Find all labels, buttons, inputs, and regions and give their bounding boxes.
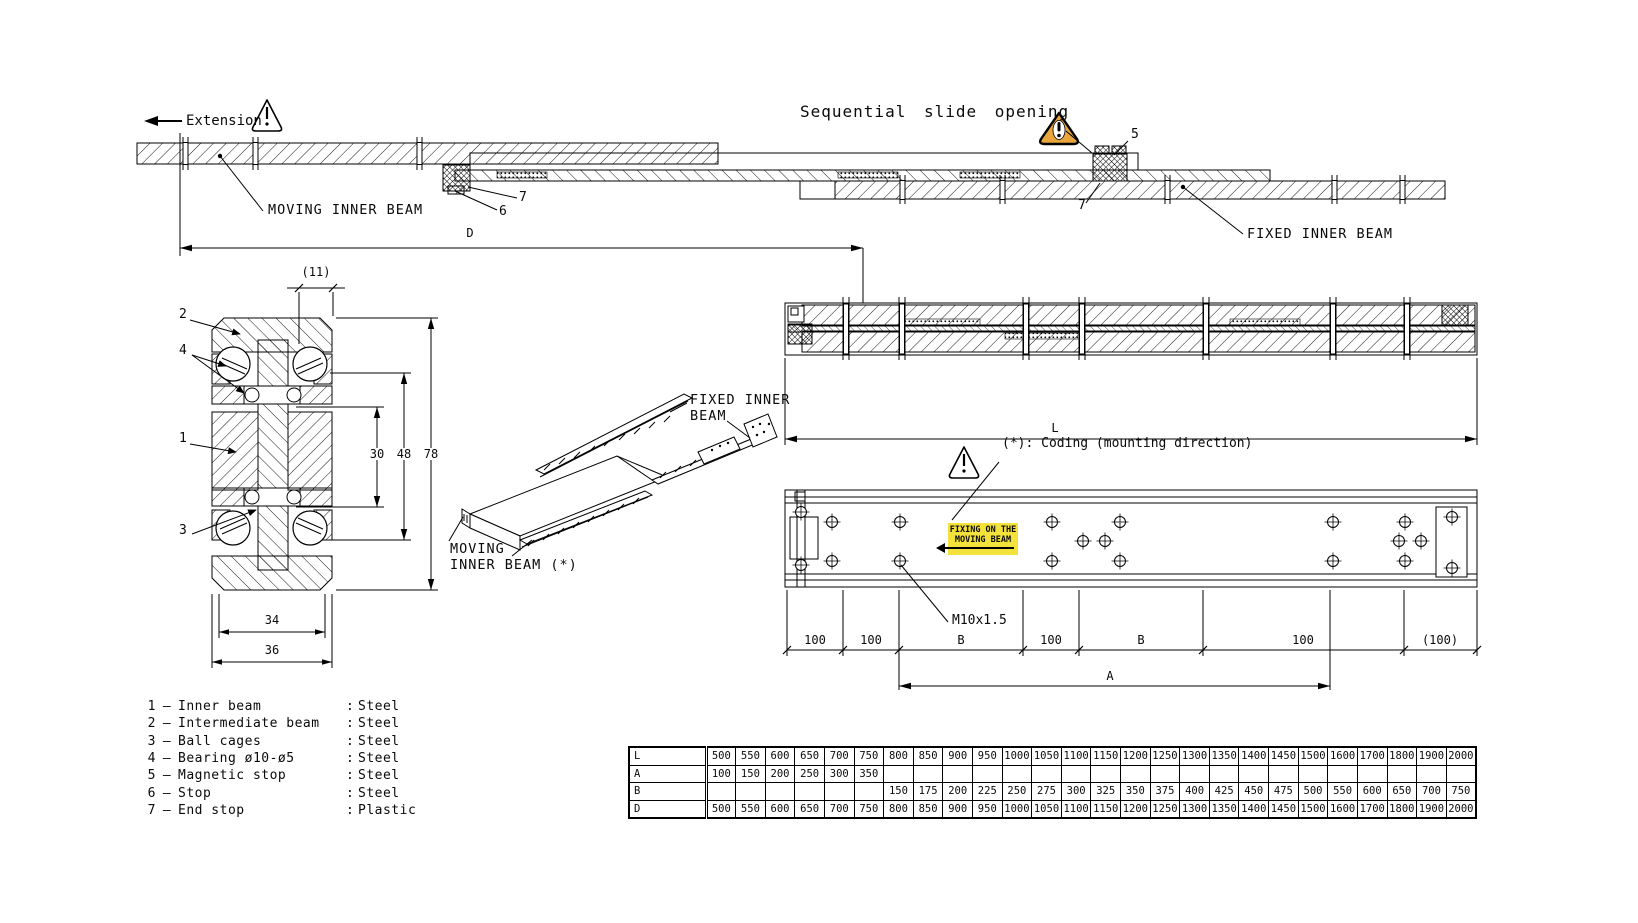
table-cell: 1400	[1239, 800, 1269, 818]
table-cell	[884, 765, 914, 783]
table-cell: 850	[913, 747, 943, 765]
part-colon: :	[346, 699, 358, 714]
table-cell	[824, 783, 854, 801]
table-cell: 1300	[1180, 800, 1210, 818]
table-cell: 250	[1002, 783, 1032, 801]
callout-3: 3	[179, 524, 187, 537]
table-cell: 100	[706, 765, 736, 783]
table-cell	[1387, 765, 1417, 783]
table-cell: 1300	[1180, 747, 1210, 765]
parts-list-item: 4–Bearing ø10-ø5:Steel	[142, 750, 416, 767]
part-sep: –	[156, 803, 178, 818]
extension-label: Extension	[186, 114, 262, 128]
table-cell: 1900	[1417, 800, 1447, 818]
table-cell	[1209, 765, 1239, 783]
table-cell: 700	[824, 747, 854, 765]
dim-d-label: D	[464, 227, 475, 239]
table-cell: 1000	[1002, 800, 1032, 818]
sequential-opening-label: Sequential slide opening	[800, 104, 1069, 120]
parts-list-item: 6–Stop:Steel	[142, 784, 416, 801]
part-pname: Ball cages	[178, 734, 346, 749]
table-cell: 350	[1121, 783, 1151, 801]
table-cell: 150	[736, 765, 766, 783]
table-cell: 475	[1269, 783, 1299, 801]
table-cell: 2000	[1446, 747, 1476, 765]
table-cell	[1091, 765, 1121, 783]
table-cell: 650	[1387, 783, 1417, 801]
fixing-note-line1: FIXING ON THE	[948, 525, 1018, 535]
part-mat: Steel	[358, 786, 400, 801]
part-mat: Steel	[358, 751, 400, 766]
table-cell	[1002, 765, 1032, 783]
part-num: 7	[142, 803, 156, 818]
table-cell: 425	[1209, 783, 1239, 801]
table-cell: 1500	[1298, 800, 1328, 818]
table-cell	[1298, 765, 1328, 783]
table-row: B150175200225250275300325350375400425450…	[629, 783, 1476, 801]
dim-78-label: 78	[422, 448, 440, 460]
part-mat: Steel	[358, 768, 400, 783]
cross-section-view	[190, 284, 438, 668]
table-cell: 900	[943, 747, 973, 765]
table-row-header: L	[629, 747, 706, 765]
part-pname: Bearing ø10-ø5	[178, 751, 346, 766]
dim-l-label: L	[1049, 422, 1060, 434]
iso-fixed-beam-label-2: BEAM	[690, 410, 727, 424]
table-cell: 300	[824, 765, 854, 783]
callout-5: 5	[1131, 128, 1139, 141]
dim-seg-3: B	[955, 634, 966, 646]
parts-list-item: 7–End stop:Plastic	[142, 802, 416, 819]
part-mat: Plastic	[358, 803, 416, 818]
table-cell: 300	[1061, 783, 1091, 801]
table-cell: 600	[1357, 783, 1387, 801]
part-sep: –	[156, 786, 178, 801]
part-num: 5	[142, 768, 156, 783]
table-cell: 1350	[1209, 800, 1239, 818]
table-cell: 500	[1298, 783, 1328, 801]
fixing-note-line2: MOVING BEAM	[948, 535, 1018, 545]
table-cell: 1200	[1121, 747, 1151, 765]
table-cell: 1100	[1061, 800, 1091, 818]
part-pname: Inner beam	[178, 699, 346, 714]
coding-note-label: (*): Coding (mounting direction)	[1002, 437, 1252, 450]
table-cell: 175	[913, 783, 943, 801]
size-table: L500550600650700750800850900950100010501…	[628, 746, 1477, 819]
table-cell: 1400	[1239, 747, 1269, 765]
parts-list-item: 3–Ball cages:Steel	[142, 733, 416, 750]
moving-inner-beam-label: MOVING INNER BEAM	[268, 204, 423, 218]
table-cell	[854, 783, 884, 801]
table-cell: 1450	[1269, 800, 1299, 818]
part-sep: –	[156, 699, 178, 714]
table-cell: 1250	[1150, 747, 1180, 765]
callout-2: 2	[179, 308, 187, 321]
table-row-header: A	[629, 765, 706, 783]
table-cell: 500	[706, 747, 736, 765]
fixing-note: FIXING ON THE MOVING BEAM	[948, 523, 1018, 555]
table-cell: 1000	[1002, 747, 1032, 765]
part-pname: Intermediate beam	[178, 716, 346, 731]
table-cell: 375	[1150, 783, 1180, 801]
table-cell: 1050	[1032, 800, 1062, 818]
table-cell: 550	[736, 747, 766, 765]
table-cell: 600	[765, 747, 795, 765]
table-cell: 2000	[1446, 800, 1476, 818]
part-sep: –	[156, 716, 178, 731]
table-cell: 325	[1091, 783, 1121, 801]
table-cell: 1600	[1328, 800, 1358, 818]
table-cell: 1050	[1032, 747, 1062, 765]
dim-48-label: 48	[395, 448, 413, 460]
table-cell: 800	[884, 747, 914, 765]
callout-7-left: 7	[519, 191, 527, 204]
table-cell: 750	[854, 747, 884, 765]
part-num: 6	[142, 786, 156, 801]
table-cell	[1269, 765, 1299, 783]
dim-34-label: 34	[263, 614, 281, 626]
table-row-header: B	[629, 783, 706, 801]
thread-label: M10x1.5	[952, 614, 1007, 627]
table-cell: 700	[1417, 783, 1447, 801]
table-cell	[1328, 765, 1358, 783]
dim-30-label: 30	[368, 448, 386, 460]
dim-seg-4: 100	[1038, 634, 1064, 646]
table-cell: 700	[824, 800, 854, 818]
table-cell: 1450	[1269, 747, 1299, 765]
part-pname: Magnetic stop	[178, 768, 346, 783]
part-colon: :	[346, 768, 358, 783]
table-cell: 500	[706, 800, 736, 818]
table-cell: 200	[765, 765, 795, 783]
table-cell: 600	[765, 800, 795, 818]
table-cell: 250	[795, 765, 825, 783]
table-cell: 400	[1180, 783, 1210, 801]
table-cell: 750	[1446, 783, 1476, 801]
part-mat: Steel	[358, 699, 400, 714]
part-num: 1	[142, 699, 156, 714]
table-cell: 650	[795, 800, 825, 818]
dim-seg-6: 100	[1290, 634, 1316, 646]
dim-11-label: (11)	[300, 266, 333, 278]
table-row: L500550600650700750800850900950100010501…	[629, 747, 1476, 765]
table-cell	[1032, 765, 1062, 783]
part-colon: :	[346, 803, 358, 818]
part-colon: :	[346, 786, 358, 801]
table-cell: 900	[943, 800, 973, 818]
table-row: A100150200250300350	[629, 765, 1476, 783]
table-row-header: D	[629, 800, 706, 818]
parts-list-item: 1–Inner beam:Steel	[142, 698, 416, 715]
part-colon: :	[346, 734, 358, 749]
table-cell	[1061, 765, 1091, 783]
table-cell	[765, 783, 795, 801]
table-cell	[1121, 765, 1151, 783]
table-cell	[736, 783, 766, 801]
table-cell: 1600	[1328, 747, 1358, 765]
iso-fixed-beam-label-1: FIXED INNER	[690, 394, 790, 408]
callout-1: 1	[179, 432, 187, 445]
table-cell: 650	[795, 747, 825, 765]
part-mat: Steel	[358, 734, 400, 749]
table-cell	[943, 765, 973, 783]
part-sep: –	[156, 734, 178, 749]
parts-list-item: 5–Magnetic stop:Steel	[142, 767, 416, 784]
table-cell: 1150	[1091, 747, 1121, 765]
table-cell	[1150, 765, 1180, 783]
iso-moving-beam-label-2: INNER BEAM (*)	[450, 559, 578, 573]
table-cell: 1200	[1121, 800, 1151, 818]
table-cell: 550	[736, 800, 766, 818]
table-cell: 1900	[1417, 747, 1447, 765]
iso-moving-beam-label-1: MOVING	[450, 543, 505, 557]
callout-6: 6	[499, 205, 507, 218]
callout-4: 4	[179, 344, 187, 357]
table-cell: 150	[884, 783, 914, 801]
table-cell: 200	[943, 783, 973, 801]
table-cell: 1500	[1298, 747, 1328, 765]
table-row: D500550600650700750800850900950100010501…	[629, 800, 1476, 818]
table-cell: 1350	[1209, 747, 1239, 765]
drawing-canvas: Extension Sequential slide opening MOVIN…	[0, 0, 1638, 923]
table-cell: 450	[1239, 783, 1269, 801]
dim-seg-7: (100)	[1420, 634, 1460, 646]
table-cell: 950	[972, 800, 1002, 818]
table-cell: 1150	[1091, 800, 1121, 818]
part-colon: :	[346, 751, 358, 766]
table-cell: 1800	[1387, 747, 1417, 765]
part-num: 3	[142, 734, 156, 749]
parts-list-item: 2–Intermediate beam:Steel	[142, 715, 416, 732]
part-num: 2	[142, 716, 156, 731]
table-cell: 850	[913, 800, 943, 818]
table-cell: 1700	[1357, 800, 1387, 818]
table-cell	[795, 783, 825, 801]
table-cell	[913, 765, 943, 783]
callout-7-right: 7	[1078, 199, 1086, 212]
table-cell: 1700	[1357, 747, 1387, 765]
table-cell: 550	[1328, 783, 1358, 801]
table-cell: 800	[884, 800, 914, 818]
table-cell	[1239, 765, 1269, 783]
table-cell	[1357, 765, 1387, 783]
table-cell	[1417, 765, 1447, 783]
table-cell	[1180, 765, 1210, 783]
isometric-view	[449, 394, 777, 556]
dim-seg-2: 100	[858, 634, 884, 646]
table-cell: 225	[972, 783, 1002, 801]
table-cell: 1800	[1387, 800, 1417, 818]
table-cell: 1100	[1061, 747, 1091, 765]
table-cell: 950	[972, 747, 1002, 765]
plan-view	[783, 447, 1481, 690]
table-cell: 1250	[1150, 800, 1180, 818]
closed-side-view	[785, 297, 1477, 445]
dim-a-label: A	[1104, 670, 1115, 682]
table-cell: 350	[854, 765, 884, 783]
part-num: 4	[142, 751, 156, 766]
fixed-inner-beam-label: FIXED INNER BEAM	[1247, 228, 1393, 242]
table-cell	[1446, 765, 1476, 783]
dim-seg-5: B	[1135, 634, 1146, 646]
table-cell: 750	[854, 800, 884, 818]
dim-seg-1: 100	[802, 634, 828, 646]
part-mat: Steel	[358, 716, 400, 731]
fixing-note-arrow-icon	[944, 547, 1014, 549]
table-cell: 275	[1032, 783, 1062, 801]
part-sep: –	[156, 768, 178, 783]
table-cell	[706, 783, 736, 801]
dim-36-label: 36	[263, 644, 281, 656]
part-sep: –	[156, 751, 178, 766]
part-pname: End stop	[178, 803, 346, 818]
table-cell	[972, 765, 1002, 783]
parts-list: 1–Inner beam:Steel2–Intermediate beam:St…	[142, 698, 416, 819]
part-colon: :	[346, 716, 358, 731]
part-pname: Stop	[178, 786, 346, 801]
